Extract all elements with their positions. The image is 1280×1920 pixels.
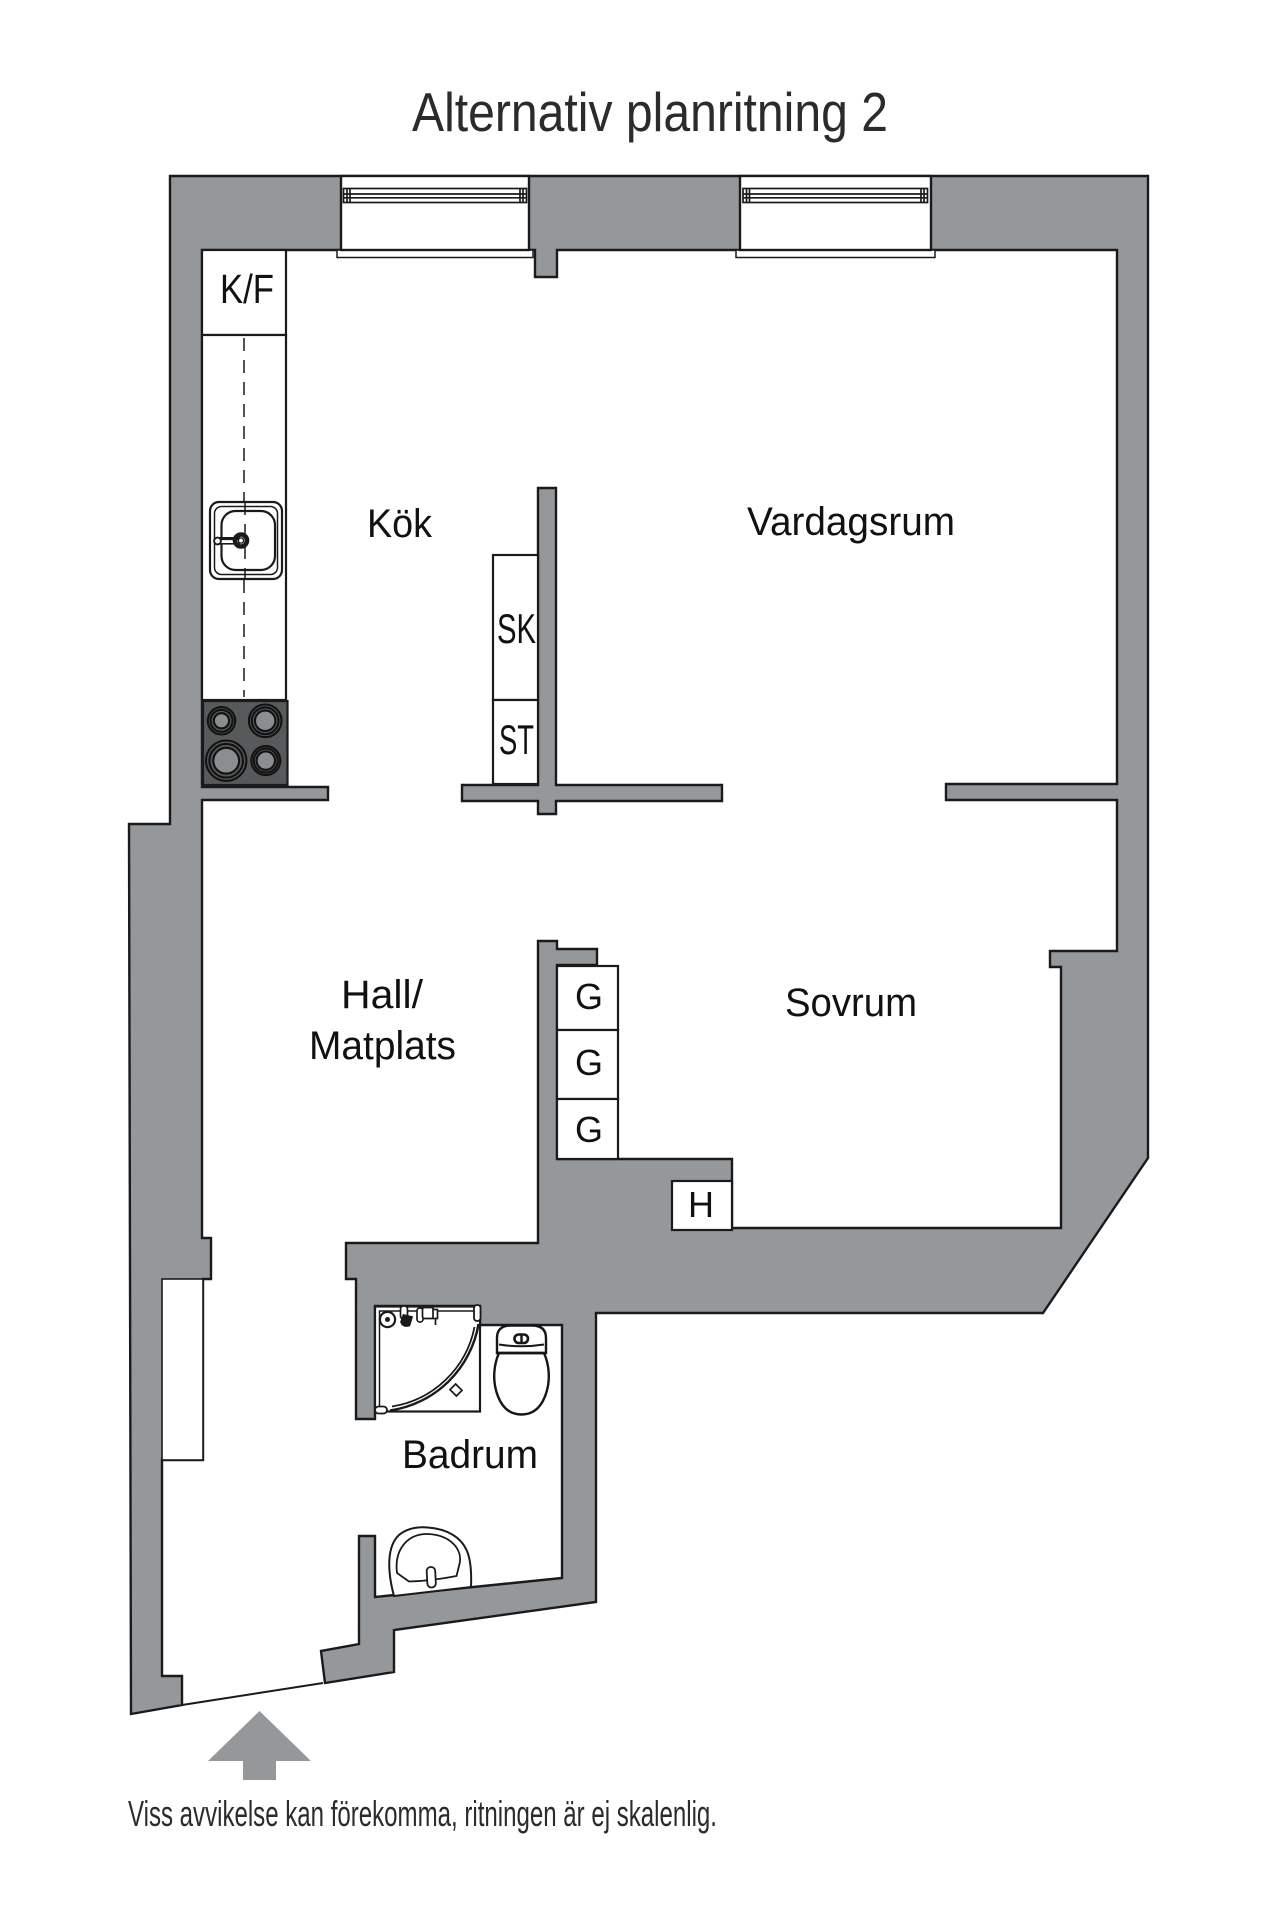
svg-text:Hall/: Hall/ xyxy=(341,973,424,1017)
svg-text:K/F: K/F xyxy=(220,266,274,312)
svg-text:G: G xyxy=(575,1109,603,1150)
svg-text:ST: ST xyxy=(499,716,534,763)
svg-text:H: H xyxy=(688,1184,714,1225)
svg-text:Alternativ planritning 2: Alternativ planritning 2 xyxy=(412,81,888,143)
svg-text:Matplats: Matplats xyxy=(309,1024,456,1068)
svg-text:G: G xyxy=(575,1042,603,1083)
svg-text:Kök: Kök xyxy=(367,502,433,546)
svg-text:G: G xyxy=(575,976,603,1017)
svg-text:Sovrum: Sovrum xyxy=(785,981,917,1025)
svg-text:SK: SK xyxy=(497,605,536,652)
svg-text:Vardagsrum: Vardagsrum xyxy=(747,500,955,544)
svg-text:Viss avvikelse kan förekomma,: Viss avvikelse kan förekomma, ritningen … xyxy=(128,1793,717,1834)
svg-text:Badrum: Badrum xyxy=(402,1433,538,1477)
